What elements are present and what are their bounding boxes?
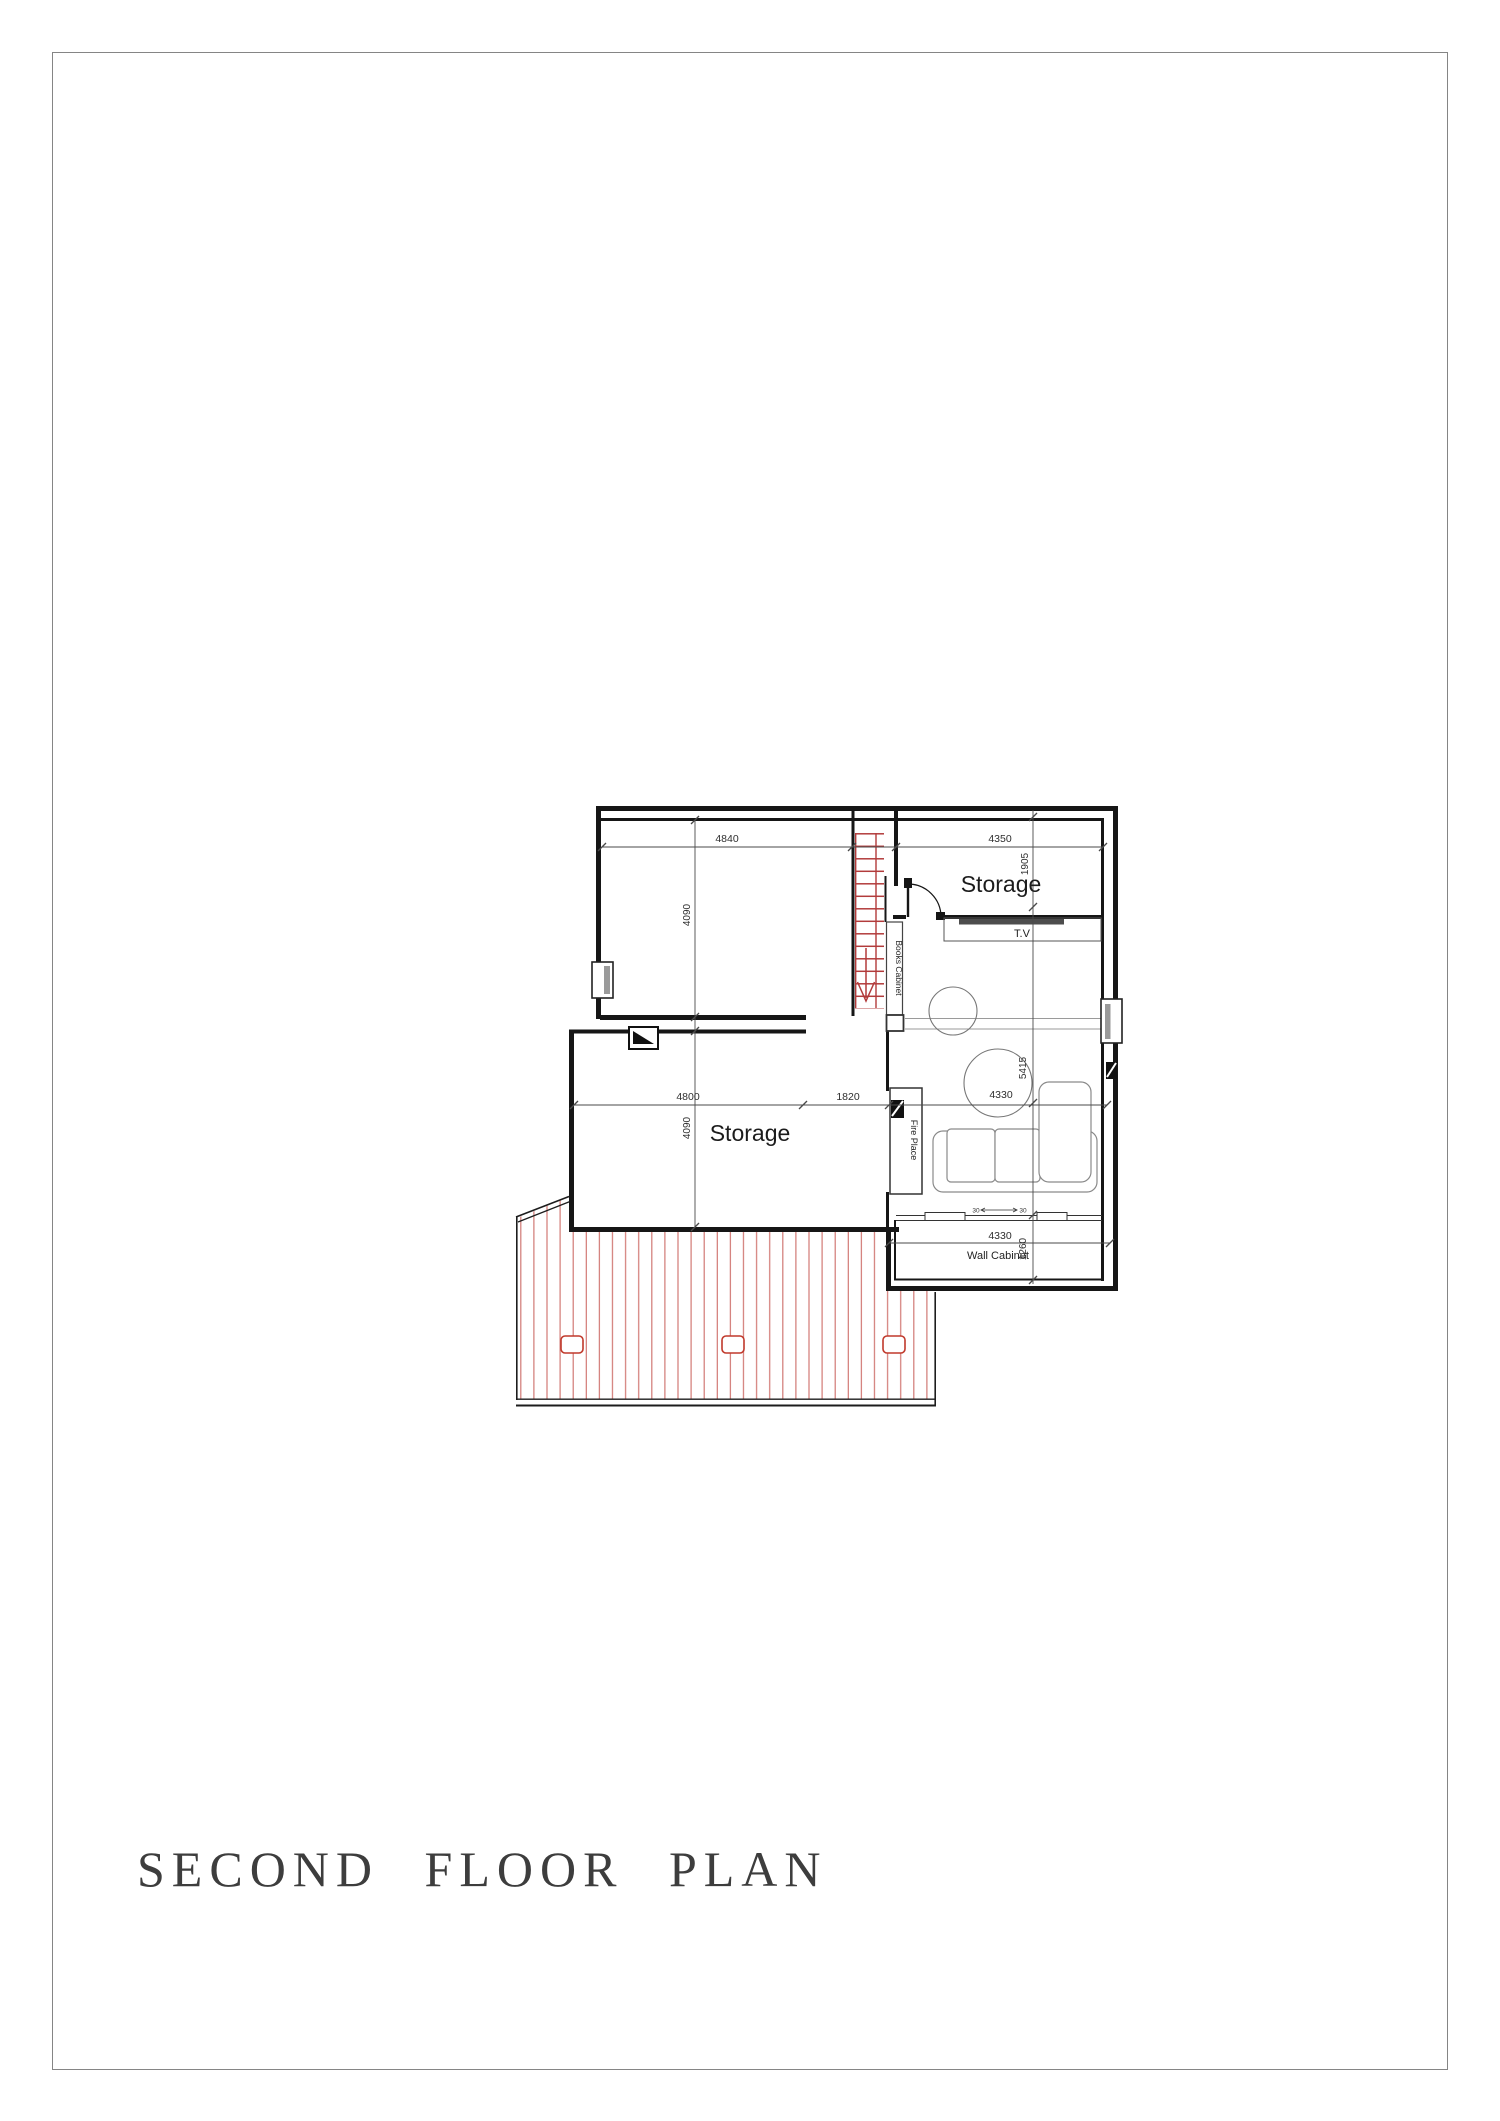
door-swing-icon: [904, 878, 945, 920]
deck-light-icon: [722, 1336, 744, 1353]
dim-4330-cabinet: 4330: [988, 1230, 1012, 1242]
dim-1820: 1820: [836, 1091, 860, 1103]
door-marker-icon: [629, 1027, 658, 1049]
stair-treads: [855, 833, 884, 1009]
drawing-title: SECOND FLOOR PLAN: [137, 1840, 937, 1898]
drawing-sheet: Books Cabinet T.V Fire Place: [0, 0, 1500, 2121]
tv-unit: T.V: [944, 918, 1101, 941]
round-table-small: [929, 987, 977, 1035]
dim-4840: 4840: [715, 833, 739, 845]
sill-dim-left: 30: [972, 1208, 980, 1215]
dim-1260: 1260: [1018, 1237, 1029, 1260]
room-label-storage-lower: Storage: [710, 1120, 791, 1146]
door-marker-icon: [1106, 1062, 1117, 1079]
tv-label: T.V: [1014, 928, 1031, 940]
dim-5415: 5415: [1018, 1056, 1029, 1079]
sill-dim-right: 30: [1019, 1208, 1027, 1215]
window-icon-left: [592, 962, 613, 998]
fireplace: Fire Place: [890, 1088, 922, 1194]
tv-icon: [959, 919, 1064, 925]
window-icon-right: [1101, 999, 1122, 1043]
deck-hatching: [500, 1190, 950, 1410]
deck-light-icon: [561, 1336, 583, 1353]
dim-4350: 4350: [988, 833, 1012, 845]
staircase: [855, 833, 884, 1009]
sofa: [933, 1082, 1097, 1192]
dim-4800: 4800: [676, 1091, 700, 1103]
books-cabinet-label: Books Cabinet: [894, 940, 904, 996]
fireplace-label: Fire Place: [909, 1120, 919, 1161]
dim-4090-upper: 4090: [682, 903, 693, 926]
room-label-storage-upper: Storage: [961, 871, 1042, 897]
dim-4090-lower: 4090: [682, 1116, 693, 1139]
dim-4330-living: 4330: [989, 1089, 1013, 1101]
sill-dimension: [981, 1208, 1017, 1212]
books-cabinet: Books Cabinet: [887, 922, 905, 1031]
deck-light-icon: [883, 1336, 905, 1353]
floor-plan: Books Cabinet T.V Fire Place: [0, 0, 1500, 2121]
deck-terrace: [500, 1190, 950, 1410]
sofa-chaise: [1039, 1082, 1091, 1182]
